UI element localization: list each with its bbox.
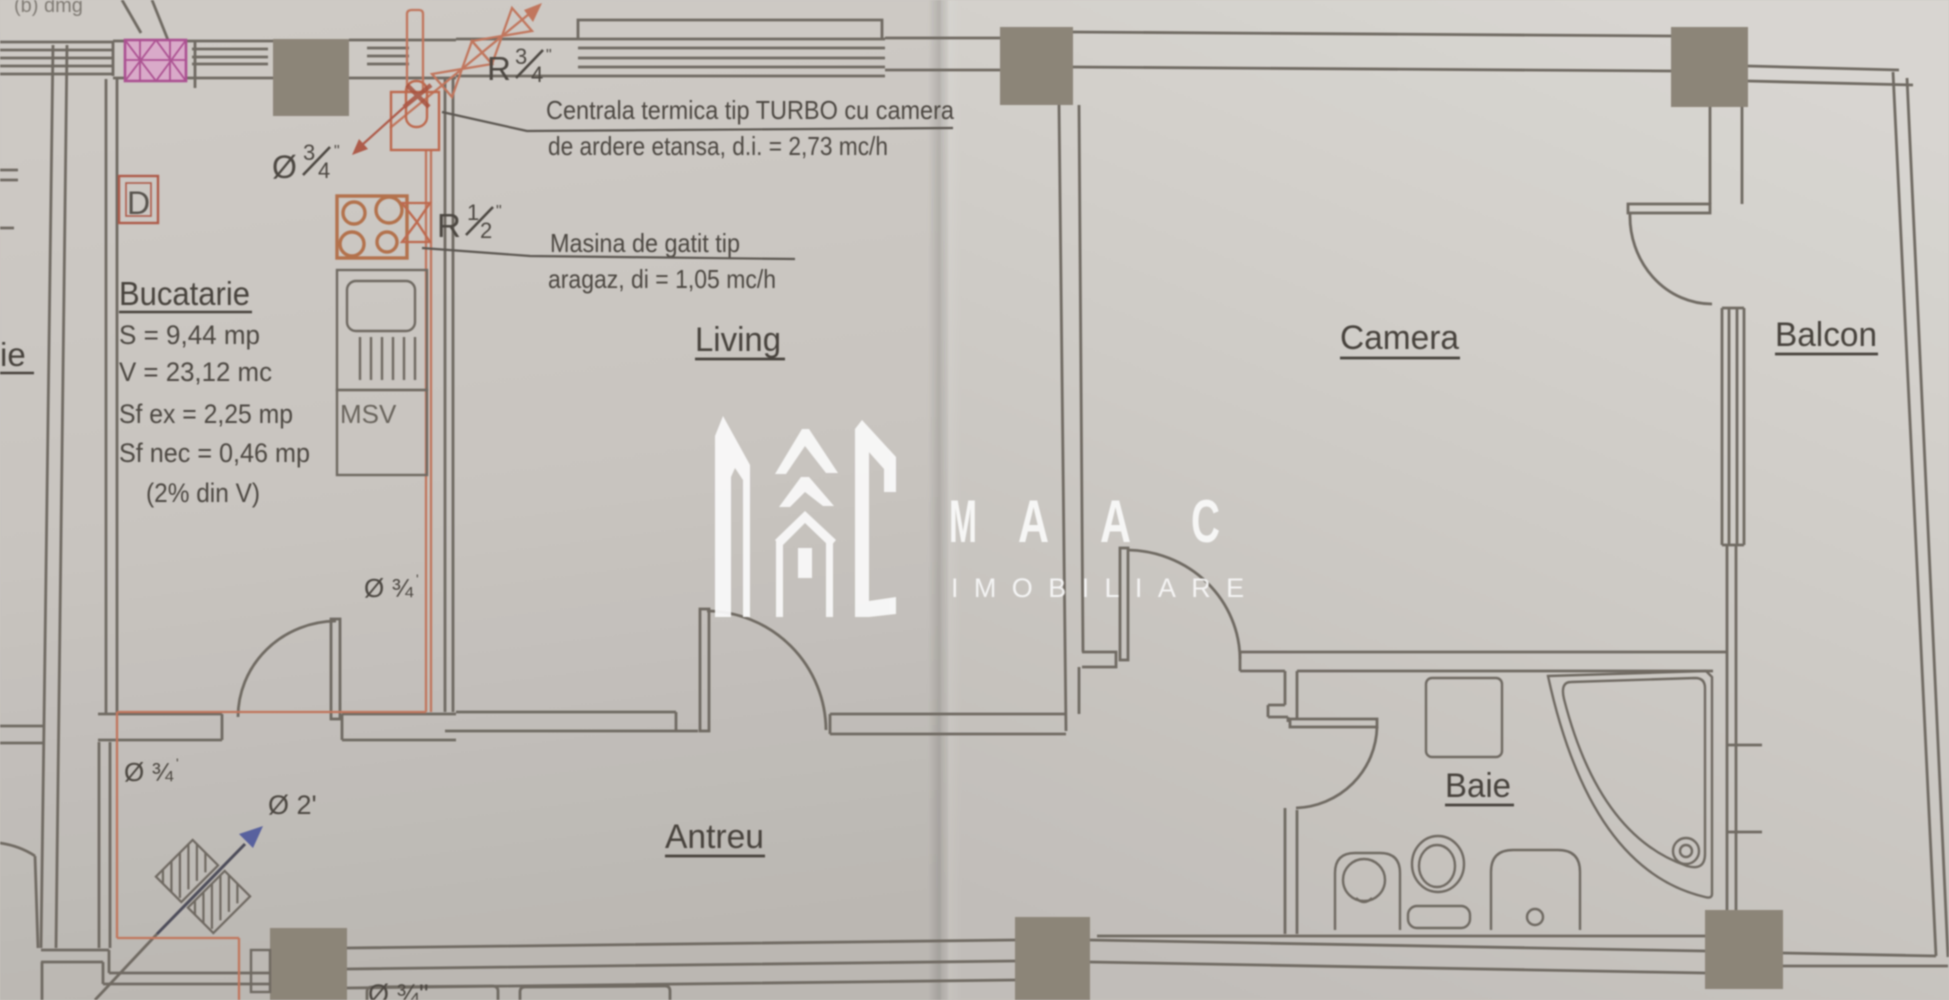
svg-text:Centrala termica tip TURBO cu: Centrala termica tip TURBO cu camera: [546, 95, 954, 125]
svg-text:D: D: [127, 185, 150, 221]
svg-text:": ": [496, 203, 502, 220]
svg-text:': ': [176, 755, 179, 771]
svg-text:(b) dmg: (b) dmg: [14, 0, 83, 17]
svg-text:M: M: [949, 488, 977, 555]
svg-text:ie: ie: [0, 336, 26, 373]
svg-text:Baie: Baie: [1445, 767, 1511, 805]
svg-text:aragaz, di = 1,05 mc/h: aragaz, di = 1,05 mc/h: [548, 264, 776, 294]
svg-text:Ø ¾: Ø ¾: [364, 573, 413, 603]
svg-text:1: 1: [467, 200, 479, 225]
svg-text:(2% din V): (2% din V): [146, 478, 260, 508]
svg-text:A: A: [1100, 488, 1131, 555]
svg-text:4: 4: [531, 62, 543, 87]
svg-text:2: 2: [480, 218, 492, 243]
svg-text:IMOBILIARE: IMOBILIARE: [951, 573, 1260, 603]
svg-text:Sf nec = 0,46 mp: Sf nec = 0,46 mp: [119, 438, 310, 468]
svg-text:Balcon: Balcon: [1775, 316, 1877, 354]
svg-text:': ': [416, 571, 419, 587]
svg-text:3: 3: [515, 44, 527, 69]
svg-text:de ardere etansa, d.i. = 2,73: de ardere etansa, d.i. = 2,73 mc/h: [548, 131, 888, 161]
svg-text:S = 9,44 mp: S = 9,44 mp: [119, 320, 260, 350]
svg-text:Camera: Camera: [1340, 319, 1459, 357]
svg-text:R: R: [437, 207, 461, 244]
svg-text:Sf ex = 2,25 mp: Sf ex = 2,25 mp: [119, 399, 293, 429]
svg-text:Ø: Ø: [272, 149, 297, 185]
svg-text:3: 3: [303, 140, 315, 165]
svg-text:": ": [546, 47, 552, 64]
svg-text:Ø 2': Ø 2': [268, 790, 317, 820]
svg-text:Masina de gatit tip: Masina de gatit tip: [550, 228, 740, 258]
svg-text:Ø ¾: Ø ¾: [124, 757, 173, 787]
svg-text:Bucatarie: Bucatarie: [119, 275, 250, 312]
svg-text:Antreu: Antreu: [665, 818, 764, 856]
svg-text:4: 4: [318, 158, 330, 183]
svg-text:MSV: MSV: [340, 399, 397, 429]
svg-text:V = 23,12 mc: V = 23,12 mc: [119, 357, 272, 387]
svg-text:C: C: [1191, 488, 1220, 555]
svg-text:Ø ¾": Ø ¾": [368, 979, 429, 1000]
svg-text:Living: Living: [695, 321, 781, 359]
svg-text:A: A: [1018, 488, 1049, 555]
svg-text:R: R: [487, 50, 511, 87]
svg-text:": ": [334, 143, 340, 160]
